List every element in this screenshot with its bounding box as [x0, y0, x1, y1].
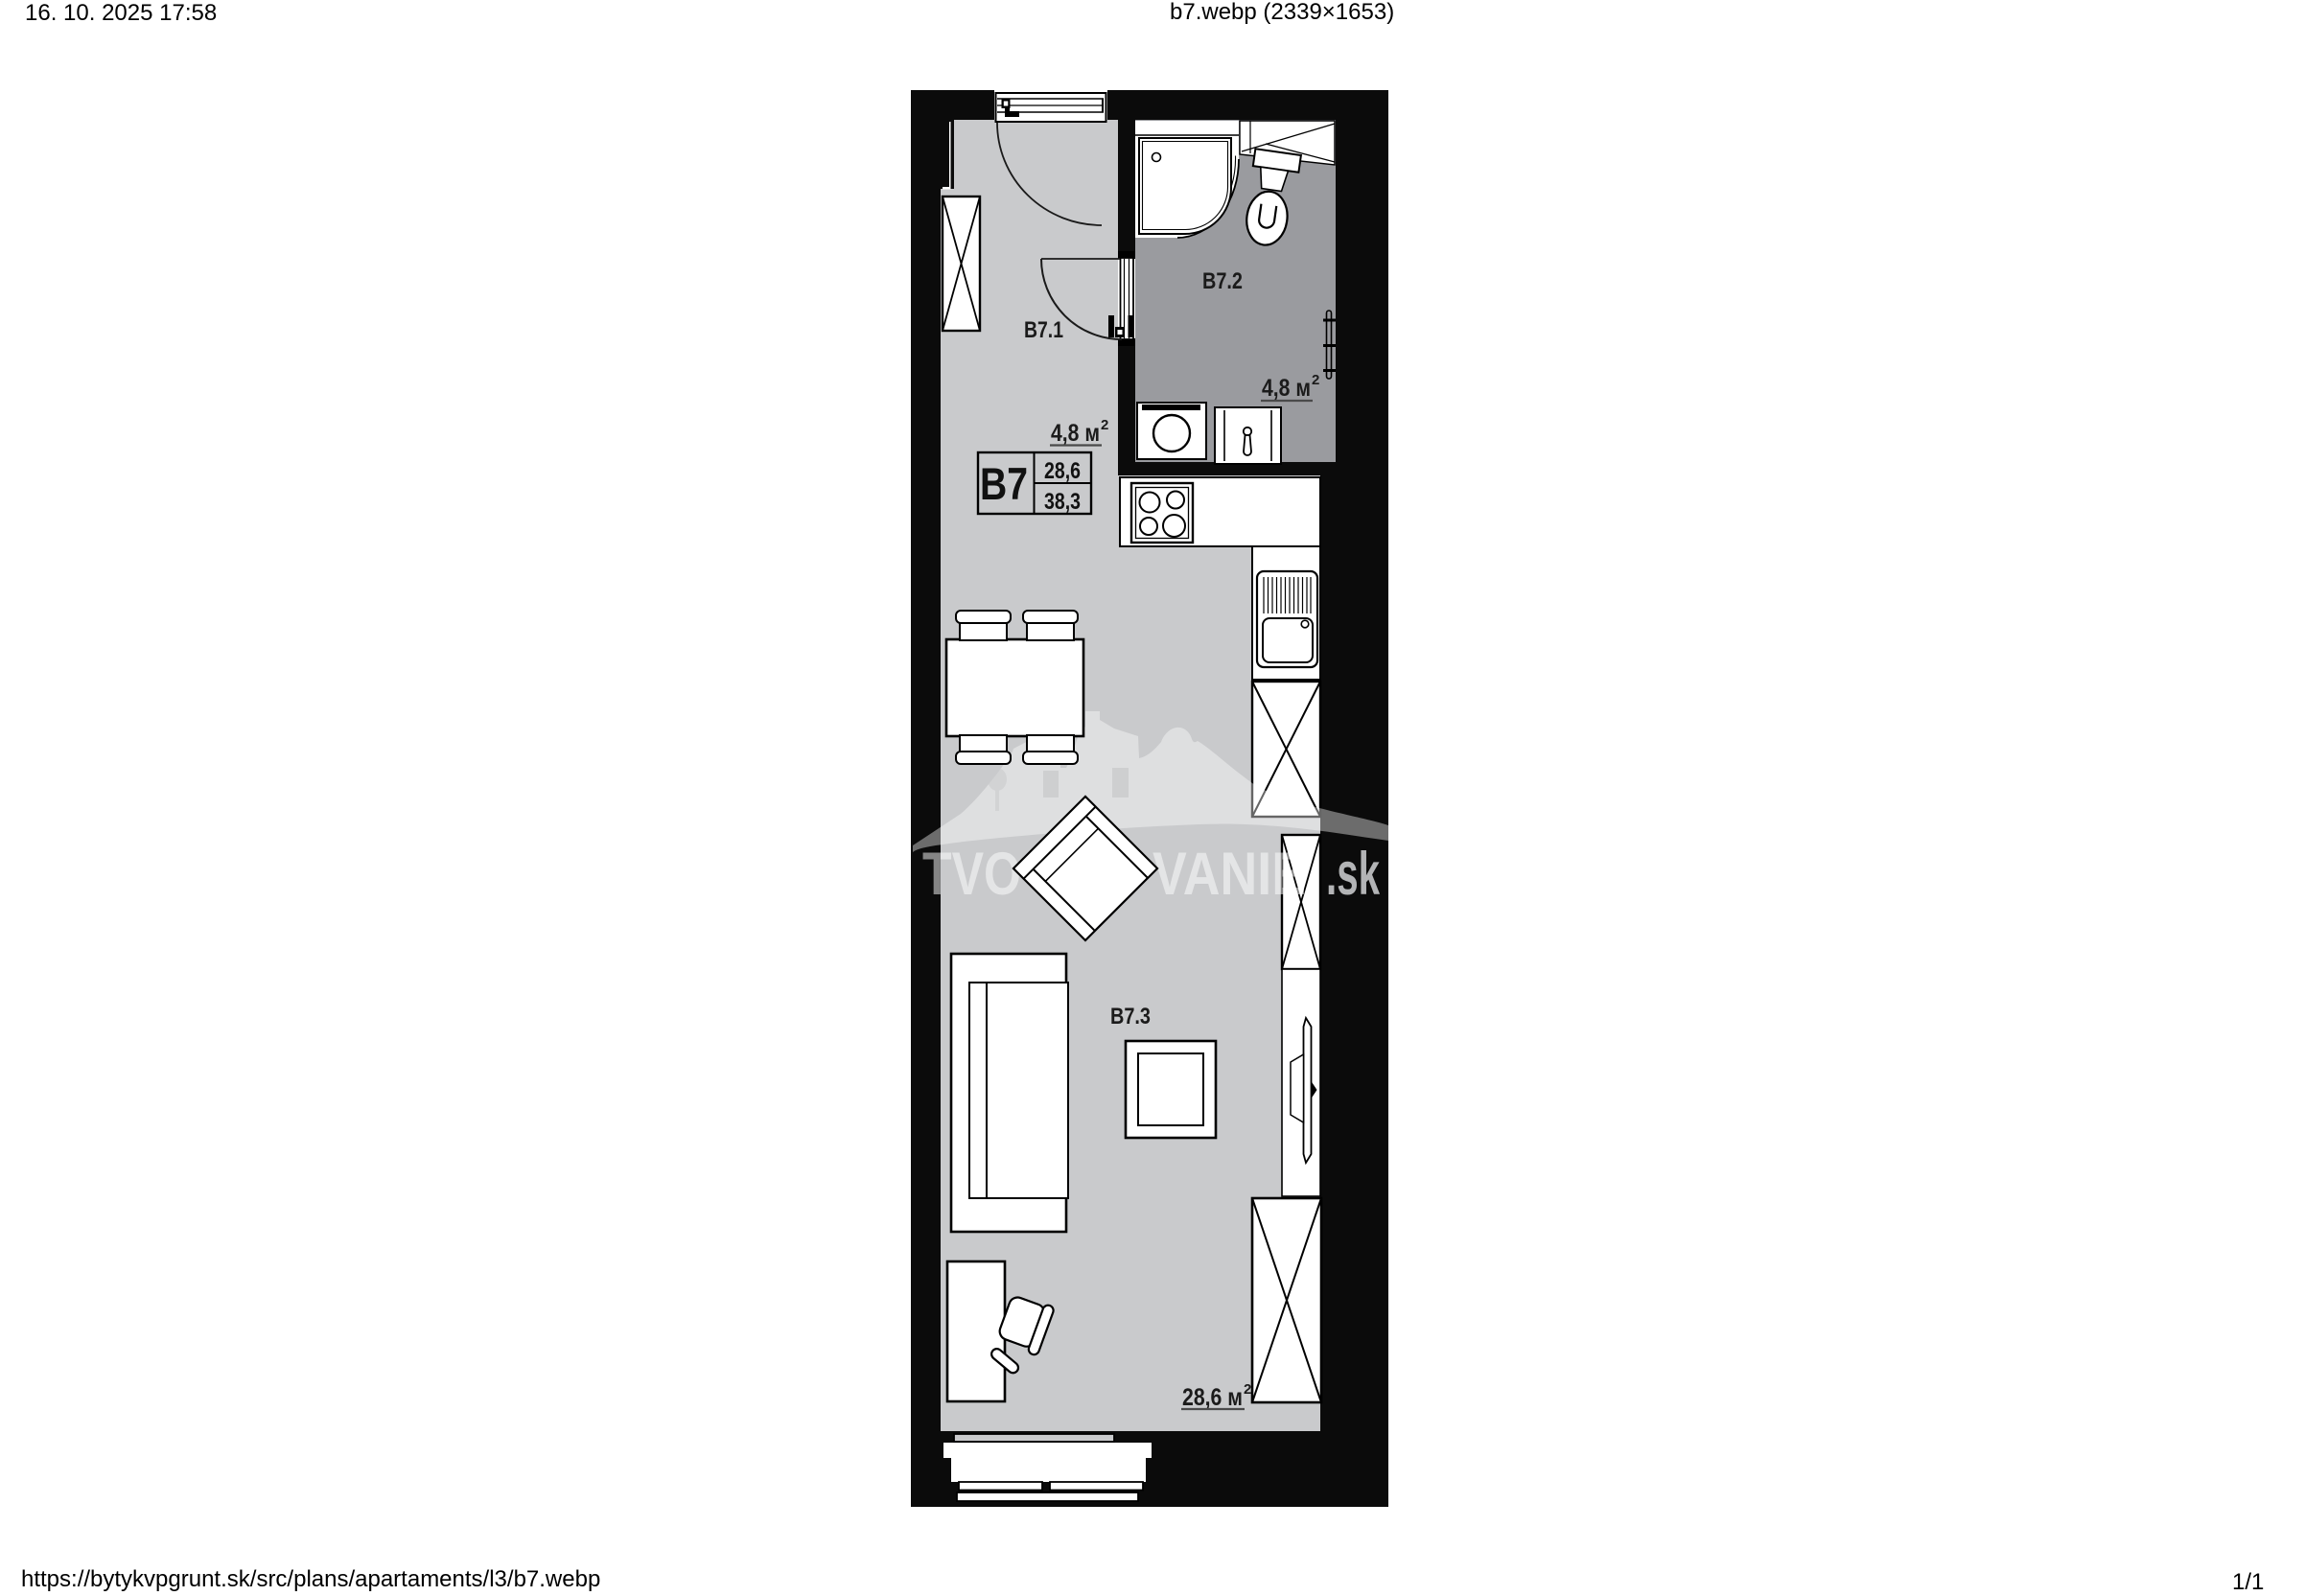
- svg-text:4,8 м: 4,8 м: [1051, 420, 1100, 447]
- svg-text:4,8 м: 4,8 м: [1262, 375, 1311, 402]
- svg-text:TVO: TVO: [922, 841, 1021, 908]
- svg-text:.sk: .sk: [1326, 841, 1381, 908]
- svg-text:VANIE: VANIE: [1152, 841, 1306, 908]
- svg-text:38,3: 38,3: [1044, 489, 1081, 515]
- svg-text:B7.3: B7.3: [1110, 1004, 1151, 1029]
- svg-text:28,6 м: 28,6 м: [1182, 1384, 1243, 1411]
- svg-text:2: 2: [1101, 417, 1108, 433]
- svg-text:2: 2: [1312, 372, 1319, 388]
- svg-text:28,6: 28,6: [1044, 458, 1081, 484]
- svg-text:B7.1: B7.1: [1024, 317, 1063, 343]
- svg-text:2: 2: [1244, 1381, 1251, 1398]
- svg-text:B7.2: B7.2: [1202, 268, 1243, 294]
- svg-text:B7: B7: [980, 458, 1028, 509]
